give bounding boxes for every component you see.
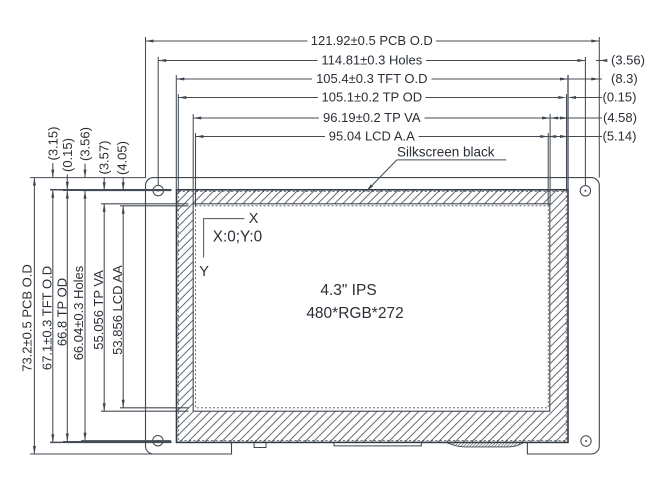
svg-text:(5.14): (5.14) [603,129,637,144]
svg-text:480*RGB*272: 480*RGB*272 [306,305,403,322]
svg-text:121.92±0.5 PCB O.D: 121.92±0.5 PCB O.D [311,33,433,48]
svg-text:4.3" IPS: 4.3" IPS [320,282,376,299]
svg-text:55.056 TP VA: 55.056 TP VA [91,270,106,350]
svg-text:53.856 LCD AA: 53.856 LCD AA [110,265,125,355]
svg-text:(0.15): (0.15) [603,90,637,105]
svg-text:114.81±0.3 Holes: 114.81±0.3 Holes [321,53,422,68]
svg-text:Y: Y [199,264,209,280]
svg-text:X: X [249,211,259,227]
svg-text:67.1±0.3 TFT O.D: 67.1±0.3 TFT O.D [39,266,54,370]
svg-text:(3.56): (3.56) [78,127,93,161]
svg-text:73.2±0.5 PCB O.D: 73.2±0.5 PCB O.D [20,264,35,372]
svg-text:96.19±0.2 TP VA: 96.19±0.2 TP VA [323,110,421,125]
svg-text:105.1±0.2 TP OD: 105.1±0.2 TP OD [321,90,422,105]
svg-text:(4.05): (4.05) [115,141,130,175]
svg-text:95.04 LCD A.A: 95.04 LCD A.A [329,129,415,144]
svg-text:(3.56): (3.56) [611,53,645,68]
svg-text:X:0;Y:0: X:0;Y:0 [213,229,262,246]
svg-text:(3.15): (3.15) [45,127,60,161]
svg-text:(8.3): (8.3) [611,71,638,86]
svg-text:(0.15): (0.15) [60,138,75,172]
svg-text:105.4±0.3 TFT O.D: 105.4±0.3 TFT O.D [316,71,427,86]
svg-text:Silkscreen black: Silkscreen black [397,145,495,160]
svg-text:(4.58): (4.58) [603,110,637,125]
svg-text:66.8 TP OD: 66.8 TP OD [54,278,69,346]
svg-text:(3.57): (3.57) [97,141,112,175]
svg-text:66.04±0.3 Holes: 66.04±0.3 Holes [71,265,86,360]
